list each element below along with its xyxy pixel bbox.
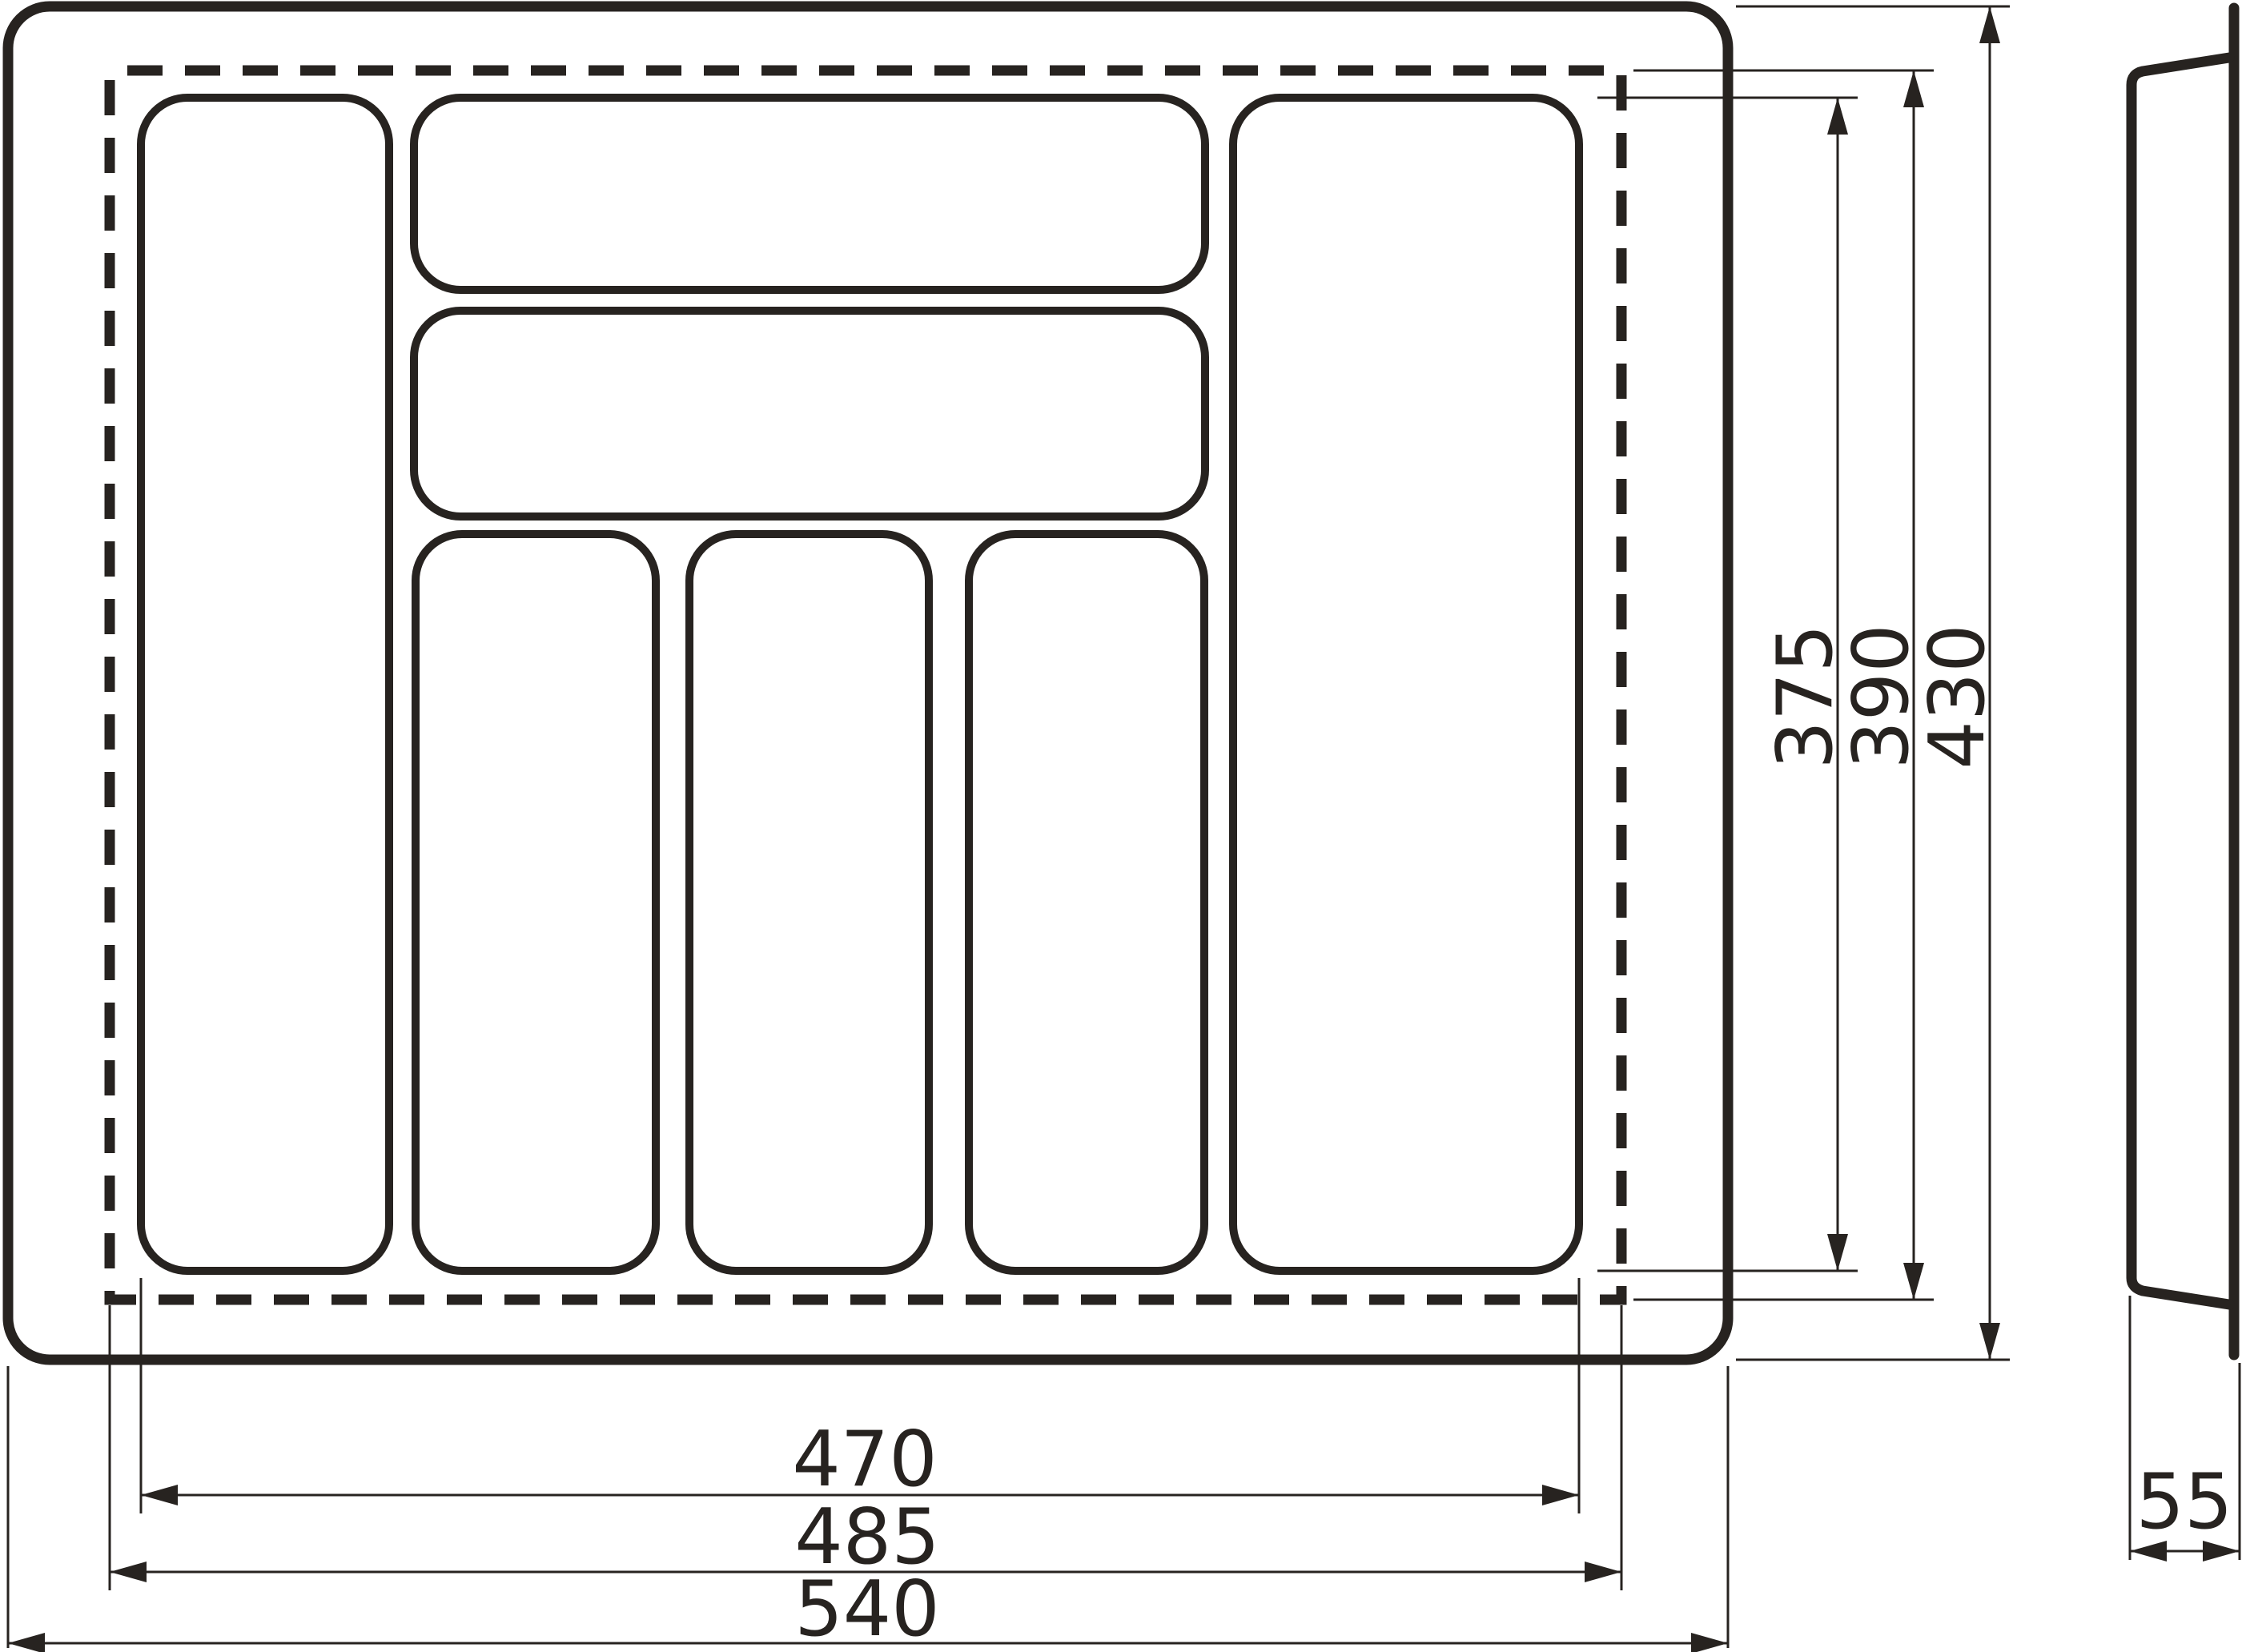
dim-470-arrow-right-icon — [1542, 1485, 1579, 1505]
compartment-small-right — [969, 534, 1204, 1271]
dim-485-arrow-left-icon — [110, 1562, 147, 1582]
dim-label-540: 540 — [794, 1566, 939, 1652]
compartment-small-left — [416, 534, 656, 1271]
dim-label-390: 390 — [1838, 624, 1926, 769]
tray-outline — [8, 6, 1728, 1360]
drawing-canvas: 375 390 430 470 485 540 — [0, 0, 2242, 1652]
dim-375-arrow-up-icon — [1827, 98, 1848, 135]
dim-label-375: 375 — [1762, 624, 1850, 769]
cut-line-dashed — [110, 70, 1621, 1300]
dim-540-arrow-left-icon — [8, 1633, 45, 1652]
dim-label-470: 470 — [792, 1416, 937, 1504]
vertical-dimensions: 375 390 430 — [1597, 6, 2010, 1360]
side-profile-view: 55 — [2130, 8, 2240, 1562]
side-profile-lip — [2132, 58, 2229, 1304]
compartment-top-wide — [414, 98, 1205, 290]
dim-label-55: 55 — [2136, 1458, 2233, 1546]
dim-430-arrow-up-icon — [1979, 6, 2000, 43]
compartment-right-long — [1233, 98, 1579, 1271]
dim-390-arrow-up-icon — [1903, 70, 1924, 107]
compartment-middle-wide — [414, 311, 1205, 517]
dim-430-arrow-down-icon — [1979, 1323, 2000, 1360]
plan-view — [8, 6, 1728, 1360]
compartment-small-center — [689, 534, 929, 1271]
dim-470-arrow-left-icon — [141, 1485, 178, 1505]
dim-label-430: 430 — [1914, 624, 2002, 769]
horizontal-dimensions: 470 485 540 — [8, 1278, 1728, 1652]
dim-485-arrow-right-icon — [1585, 1562, 1621, 1582]
dim-540-arrow-right-icon — [1691, 1633, 1728, 1652]
dim-375-arrow-down-icon — [1827, 1234, 1848, 1271]
cutlery-tray-technical-drawing: 375 390 430 470 485 540 — [0, 0, 2242, 1652]
dim-390-arrow-down-icon — [1903, 1263, 1924, 1300]
compartment-left-long — [141, 98, 389, 1271]
